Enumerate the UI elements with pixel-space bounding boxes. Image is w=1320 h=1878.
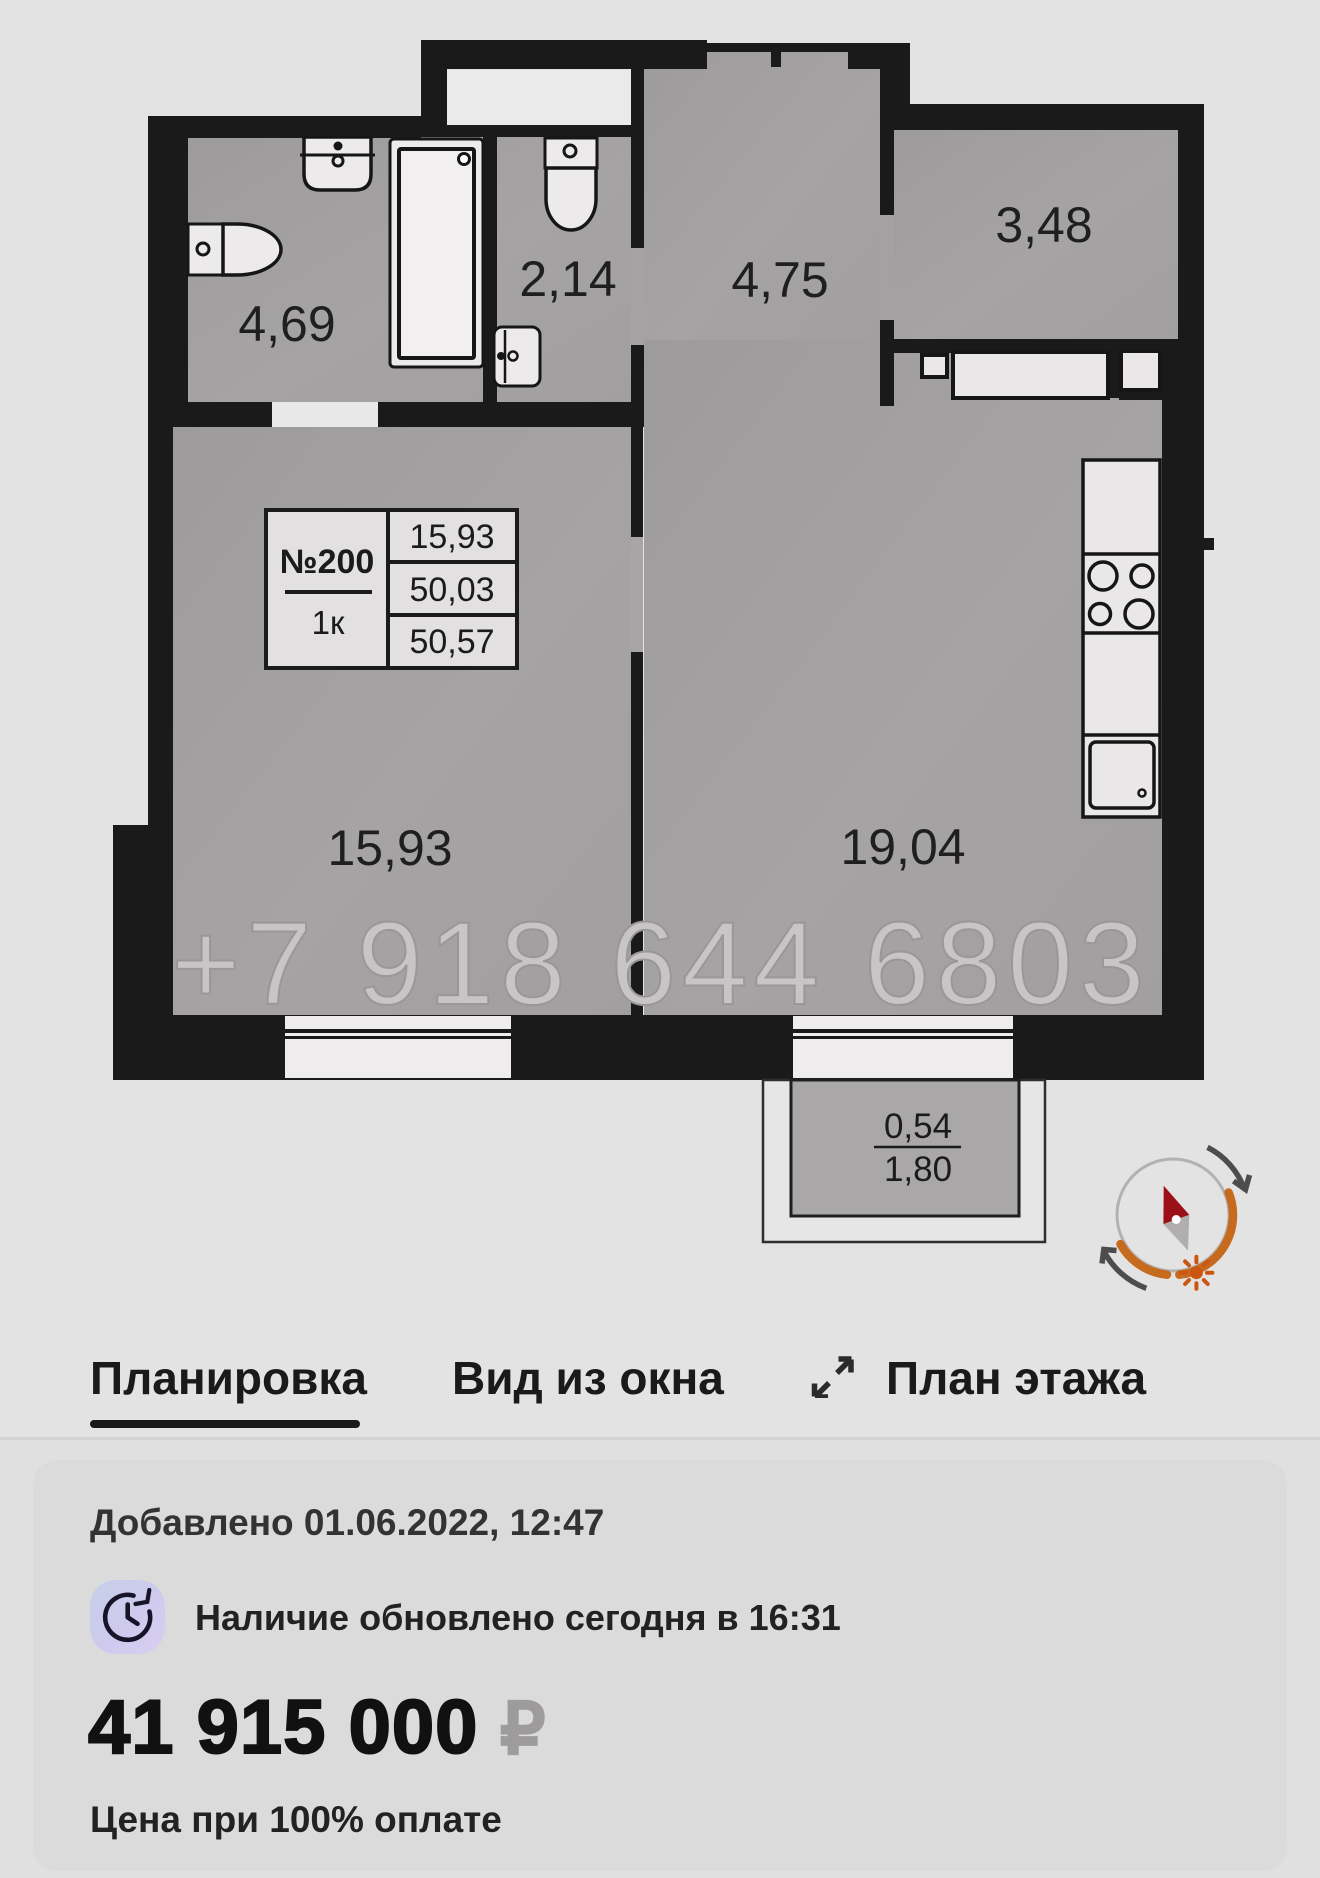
svg-text:15,93: 15,93: [409, 518, 494, 556]
svg-text:1,80: 1,80: [884, 1150, 952, 1189]
svg-text:№200: №200: [280, 543, 375, 581]
svg-text:50,57: 50,57: [409, 623, 494, 661]
svg-text:19,04: 19,04: [840, 819, 965, 875]
svg-text:4,75: 4,75: [731, 252, 828, 308]
svg-text:15,93: 15,93: [327, 820, 452, 876]
svg-text:4,69: 4,69: [238, 296, 335, 352]
svg-text:1к: 1к: [312, 604, 345, 641]
svg-text:2,14: 2,14: [519, 251, 616, 307]
svg-text:+7 918 644 6803: +7 918 644 6803: [171, 898, 1150, 1030]
svg-text:50,03: 50,03: [409, 571, 494, 609]
svg-text:0,54: 0,54: [884, 1107, 952, 1146]
svg-text:3,48: 3,48: [995, 197, 1092, 253]
